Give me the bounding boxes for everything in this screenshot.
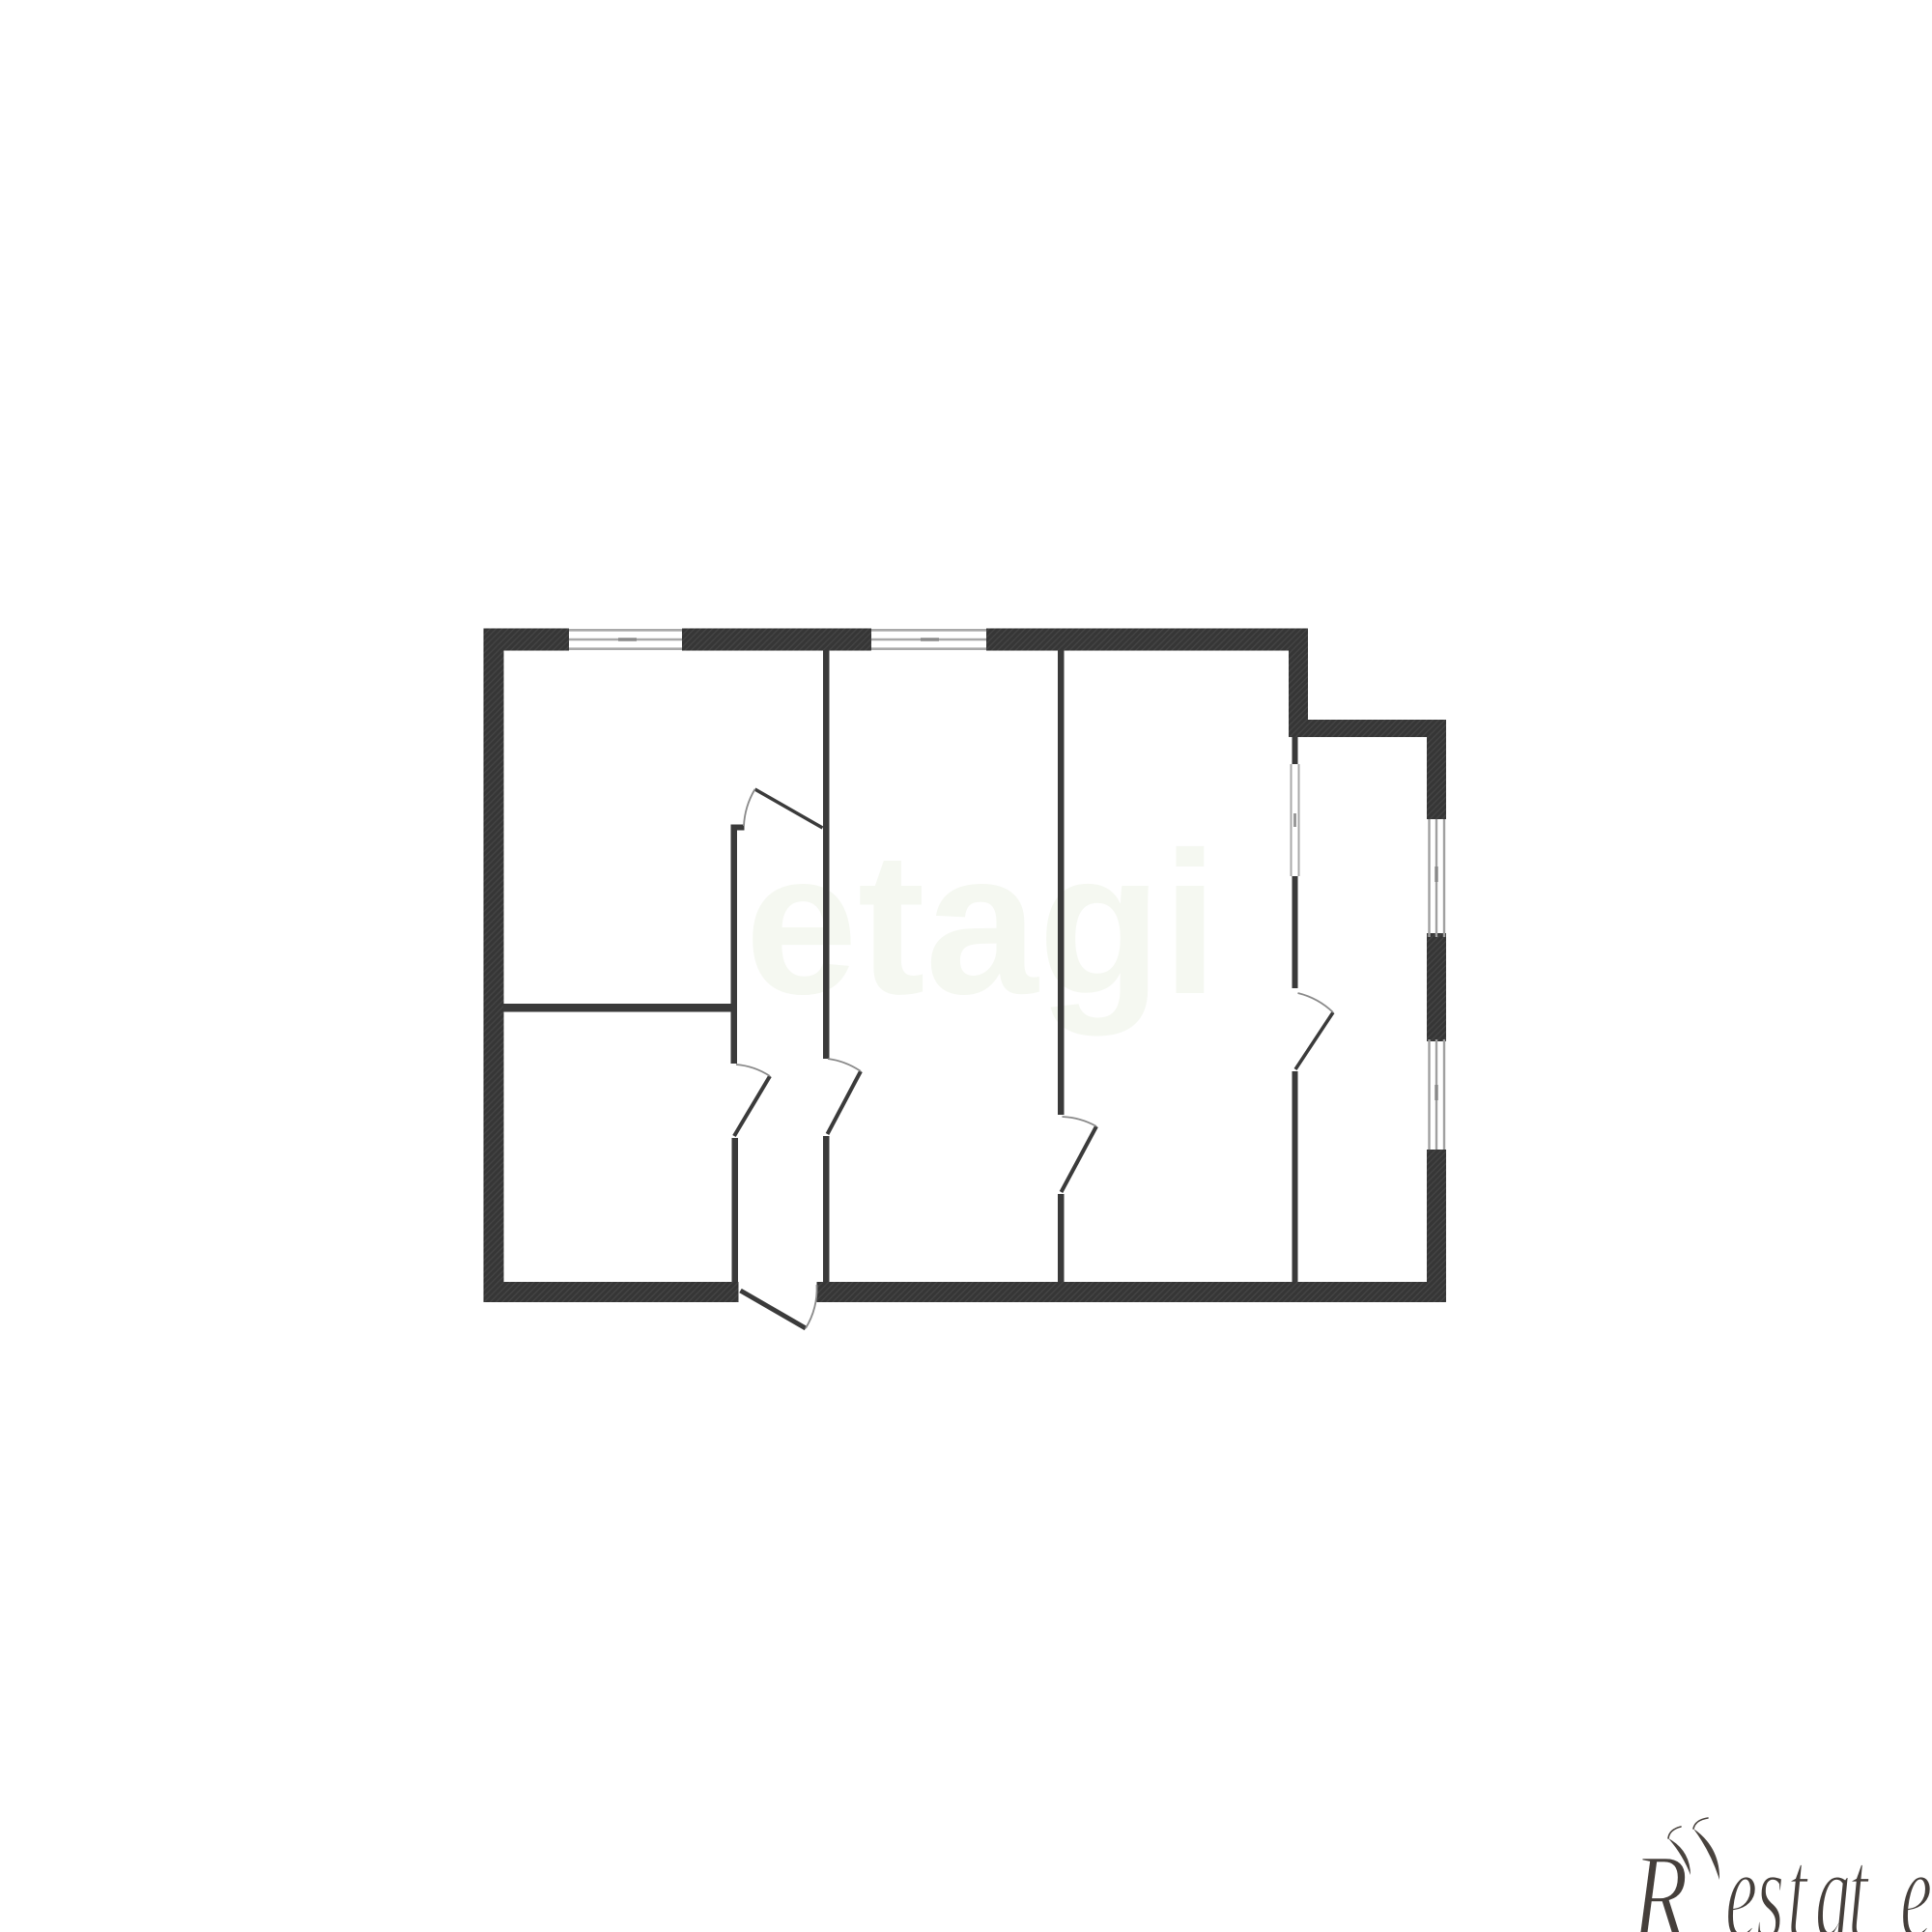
svg-text:R: R xyxy=(1632,1831,1689,1932)
svg-text:e: e xyxy=(1725,1821,1757,1932)
svg-text:a: a xyxy=(1815,1821,1851,1932)
svg-text:etagi: etagi xyxy=(745,810,1218,1037)
svg-text:t: t xyxy=(1848,1821,1869,1932)
svg-text:e: e xyxy=(1900,1821,1932,1932)
svg-text:s: s xyxy=(1756,1821,1784,1932)
svg-text:t: t xyxy=(1787,1821,1808,1932)
